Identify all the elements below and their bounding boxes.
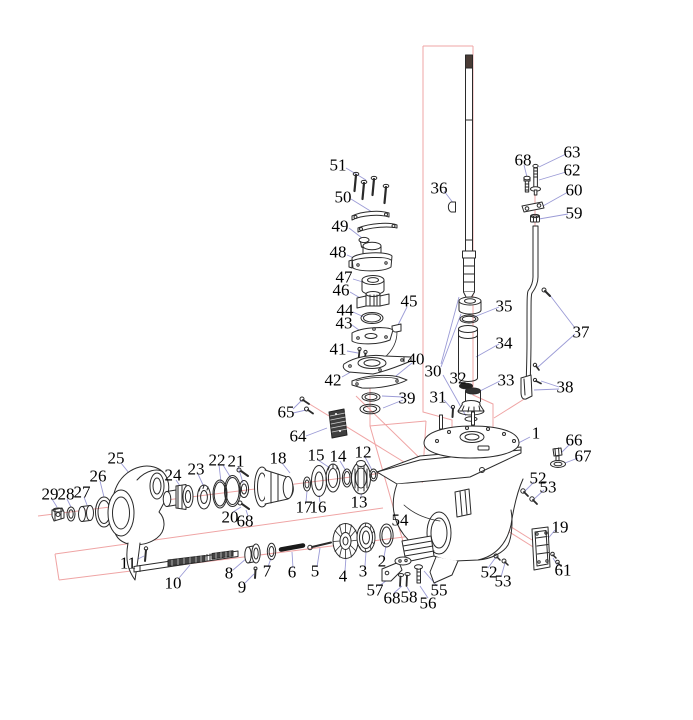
washer-28: [67, 507, 75, 521]
anode-plate-19: [532, 527, 550, 570]
pump-bolts-51: [353, 172, 389, 203]
rod-guide-38: [521, 375, 541, 399]
o-ring-44: [361, 313, 383, 324]
shift-rod-59: [526, 226, 538, 393]
impeller-46: [357, 292, 389, 309]
bearing-15: [326, 464, 340, 492]
pin-11: [144, 547, 147, 561]
stud-63: [533, 164, 538, 167]
screws-52-53-upper: [521, 489, 537, 504]
rod-screws-37: [533, 288, 550, 370]
anode-block-64: [329, 409, 347, 438]
screws-68-58-bottom: [398, 573, 410, 587]
spacer-27: [79, 506, 94, 522]
pinion-gear-group: [451, 383, 484, 421]
washer-7: [267, 543, 275, 559]
nut-59: [531, 214, 540, 222]
pin-9: [254, 567, 257, 578]
o-ring-12: [370, 469, 378, 481]
bearing-sleeve-34: [459, 326, 478, 382]
tapered-bearing-3: [357, 523, 375, 552]
link-plates-50: [352, 211, 397, 232]
reverse-gear-13: [352, 461, 371, 495]
oil-seal-cap-18: [255, 467, 294, 507]
screws-61: [551, 552, 561, 566]
forward-gear-4: [333, 524, 358, 559]
pump-base-42: [343, 355, 411, 374]
gasket-40: [352, 375, 407, 388]
parts-diagram-canvas: 5150494847464443454142403936303132333435…: [0, 0, 693, 720]
drive-shaft: [463, 55, 476, 302]
pump-housing-48: [349, 242, 392, 271]
o-ring-14: [342, 469, 351, 487]
shear-hub-8: [245, 544, 260, 563]
bolt-68-top: [524, 176, 530, 192]
clip-36: [448, 202, 455, 212]
bearing-35-stack: [459, 297, 481, 323]
gasket-43: [352, 328, 393, 344]
prop-nut-29: [52, 508, 64, 521]
exploded-view-drawing: [0, 0, 693, 720]
bearing-23: [198, 485, 211, 509]
drive-pin-6: [281, 546, 303, 550]
propeller-shaft-10: [134, 551, 238, 572]
o-ring-2: [380, 524, 393, 547]
connector-plate-60: [522, 202, 544, 212]
bushing-17: [303, 477, 310, 491]
drain-screws-52-53-lower: [494, 554, 508, 565]
bolt-56: [415, 565, 423, 583]
rod-end-62: [531, 168, 541, 195]
